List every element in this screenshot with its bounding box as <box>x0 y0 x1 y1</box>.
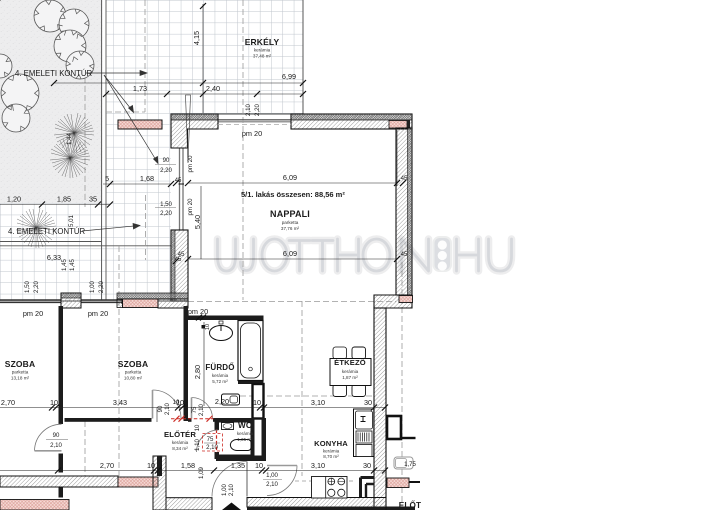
svg-text:45: 45 <box>401 251 408 258</box>
svg-text:6,09: 6,09 <box>283 173 297 182</box>
svg-text:1,35: 1,35 <box>231 461 245 470</box>
svg-text:10: 10 <box>147 461 155 470</box>
svg-text:KONYHA: KONYHA <box>314 439 348 448</box>
svg-text:2,70: 2,70 <box>100 461 114 470</box>
svg-text:SZOBA: SZOBA <box>5 359 36 369</box>
svg-text:2,10: 2,10 <box>198 403 205 415</box>
svg-text:pm 20: pm 20 <box>188 307 208 316</box>
svg-text:90: 90 <box>157 405 164 412</box>
svg-text:kerámia: kerámia <box>342 369 359 374</box>
svg-text:1,73: 1,73 <box>133 84 147 93</box>
svg-text:30: 30 <box>363 461 371 470</box>
svg-text:1,44: 1,44 <box>66 132 73 144</box>
svg-text:parketta: parketta <box>125 370 142 375</box>
svg-text:2,70: 2,70 <box>1 398 15 407</box>
svg-text:2,10: 2,10 <box>228 483 235 495</box>
svg-text:4,15: 4,15 <box>192 31 201 45</box>
svg-text:WC: WC <box>238 421 252 430</box>
svg-text:kerámia: kerámia <box>237 431 254 436</box>
svg-text:2,10: 2,10 <box>266 481 278 488</box>
svg-text:2,10: 2,10 <box>164 402 171 414</box>
svg-text:10,80 m²: 10,80 m² <box>124 376 143 381</box>
svg-text:ELŐT: ELŐT <box>399 499 421 510</box>
svg-text:1,00: 1,00 <box>89 280 96 292</box>
svg-text:2,10: 2,10 <box>245 103 252 115</box>
svg-text:2,20: 2,20 <box>160 210 172 217</box>
svg-text:1,45: 1,45 <box>61 258 68 270</box>
svg-text:kerámia: kerámia <box>323 449 340 454</box>
svg-text:4. EMELETI KONTÚR: 4. EMELETI KONTÚR <box>15 69 92 78</box>
svg-text:8,70 m²: 8,70 m² <box>323 454 339 459</box>
svg-text:2,20: 2,20 <box>215 397 229 406</box>
svg-text:FÜRDŐ: FÜRDŐ <box>205 363 234 372</box>
svg-text:1,58: 1,58 <box>181 461 195 470</box>
svg-text:2,20: 2,20 <box>98 280 105 292</box>
svg-text:SZOBA: SZOBA <box>118 359 149 369</box>
svg-text:3,10: 3,10 <box>311 461 325 470</box>
svg-text:2,20: 2,20 <box>254 103 261 115</box>
svg-text:pm 20: pm 20 <box>242 129 262 138</box>
svg-text:13,18 m²: 13,18 m² <box>11 376 30 381</box>
svg-text:1,20: 1,20 <box>7 195 21 204</box>
svg-text:1,45: 1,45 <box>69 258 76 270</box>
svg-text:45: 45 <box>401 175 408 182</box>
svg-text:35: 35 <box>89 195 97 204</box>
svg-text:10: 10 <box>194 424 201 431</box>
svg-text:kerámia: kerámia <box>212 373 229 378</box>
svg-text:1,09: 1,09 <box>198 466 205 478</box>
svg-text:6,33: 6,33 <box>47 253 61 262</box>
svg-text:75: 75 <box>191 406 198 413</box>
svg-text:5,01: 5,01 <box>68 214 75 226</box>
svg-text:ERKÉLY: ERKÉLY <box>245 37 280 47</box>
svg-text:ÉTKEZŐ: ÉTKEZŐ <box>334 358 366 367</box>
svg-text:45: 45 <box>175 256 182 263</box>
svg-text:45: 45 <box>175 177 182 184</box>
svg-text:1,85: 1,85 <box>57 195 71 204</box>
svg-text:1,00: 1,00 <box>221 483 228 495</box>
svg-text:90: 90 <box>163 157 170 164</box>
svg-text:pm 20: pm 20 <box>187 155 194 173</box>
svg-text:1,50: 1,50 <box>24 280 31 292</box>
svg-text:NAPPALI: NAPPALI <box>270 209 310 219</box>
svg-text:10: 10 <box>253 398 261 407</box>
svg-text:6,09: 6,09 <box>283 249 297 258</box>
svg-text:5,40: 5,40 <box>193 215 202 229</box>
svg-text:1,35 m²: 1,35 m² <box>237 437 253 442</box>
svg-text:37,76 m²: 37,76 m² <box>281 226 300 231</box>
svg-text:30: 30 <box>364 398 372 407</box>
svg-text:2,10: 2,10 <box>206 444 218 451</box>
svg-text:pm 20: pm 20 <box>88 309 108 318</box>
svg-text:pm 20: pm 20 <box>23 309 43 318</box>
svg-text:75: 75 <box>207 436 214 443</box>
svg-text:6,99: 6,99 <box>282 72 296 81</box>
svg-text:2,40: 2,40 <box>206 84 220 93</box>
svg-text:1,87 m²: 1,87 m² <box>342 375 358 380</box>
svg-text:37,48 m²: 37,48 m² <box>253 54 272 59</box>
svg-text:5/1. lakás összesen: 88,56 m²: 5/1. lakás összesen: 88,56 m² <box>241 190 345 199</box>
svg-text:2,10: 2,10 <box>50 442 62 449</box>
svg-text:kerámia: kerámia <box>172 440 189 445</box>
svg-text:1,00: 1,00 <box>266 472 278 479</box>
svg-text:1,68: 1,68 <box>140 174 154 183</box>
svg-text:ELŐTÉR: ELŐTÉR <box>164 430 196 439</box>
svg-text:5: 5 <box>105 174 109 183</box>
svg-text:8,34 m²: 8,34 m² <box>172 446 188 451</box>
svg-text:kerámia: kerámia <box>254 48 271 53</box>
svg-text:2,20: 2,20 <box>33 280 40 292</box>
svg-text:10: 10 <box>255 461 263 470</box>
svg-text:10: 10 <box>50 398 58 407</box>
svg-text:3,10: 3,10 <box>311 398 325 407</box>
svg-text:4. EMELETI KONTÚR: 4. EMELETI KONTÚR <box>8 227 85 236</box>
svg-text:pm 20: pm 20 <box>187 198 194 216</box>
svg-text:10: 10 <box>205 324 211 330</box>
svg-text:parketta: parketta <box>12 370 29 375</box>
svg-text:2,20: 2,20 <box>160 167 172 174</box>
svg-text:10: 10 <box>173 399 180 406</box>
svg-text:1,50: 1,50 <box>160 201 172 208</box>
svg-text:parketta: parketta <box>282 220 299 225</box>
svg-text:3,43: 3,43 <box>113 398 127 407</box>
svg-text:1,75: 1,75 <box>404 461 416 468</box>
svg-text:2,80: 2,80 <box>193 365 202 379</box>
svg-text:5,72 m²: 5,72 m² <box>212 379 228 384</box>
svg-text:90: 90 <box>53 432 60 439</box>
svg-text:1,10: 1,10 <box>194 438 201 450</box>
